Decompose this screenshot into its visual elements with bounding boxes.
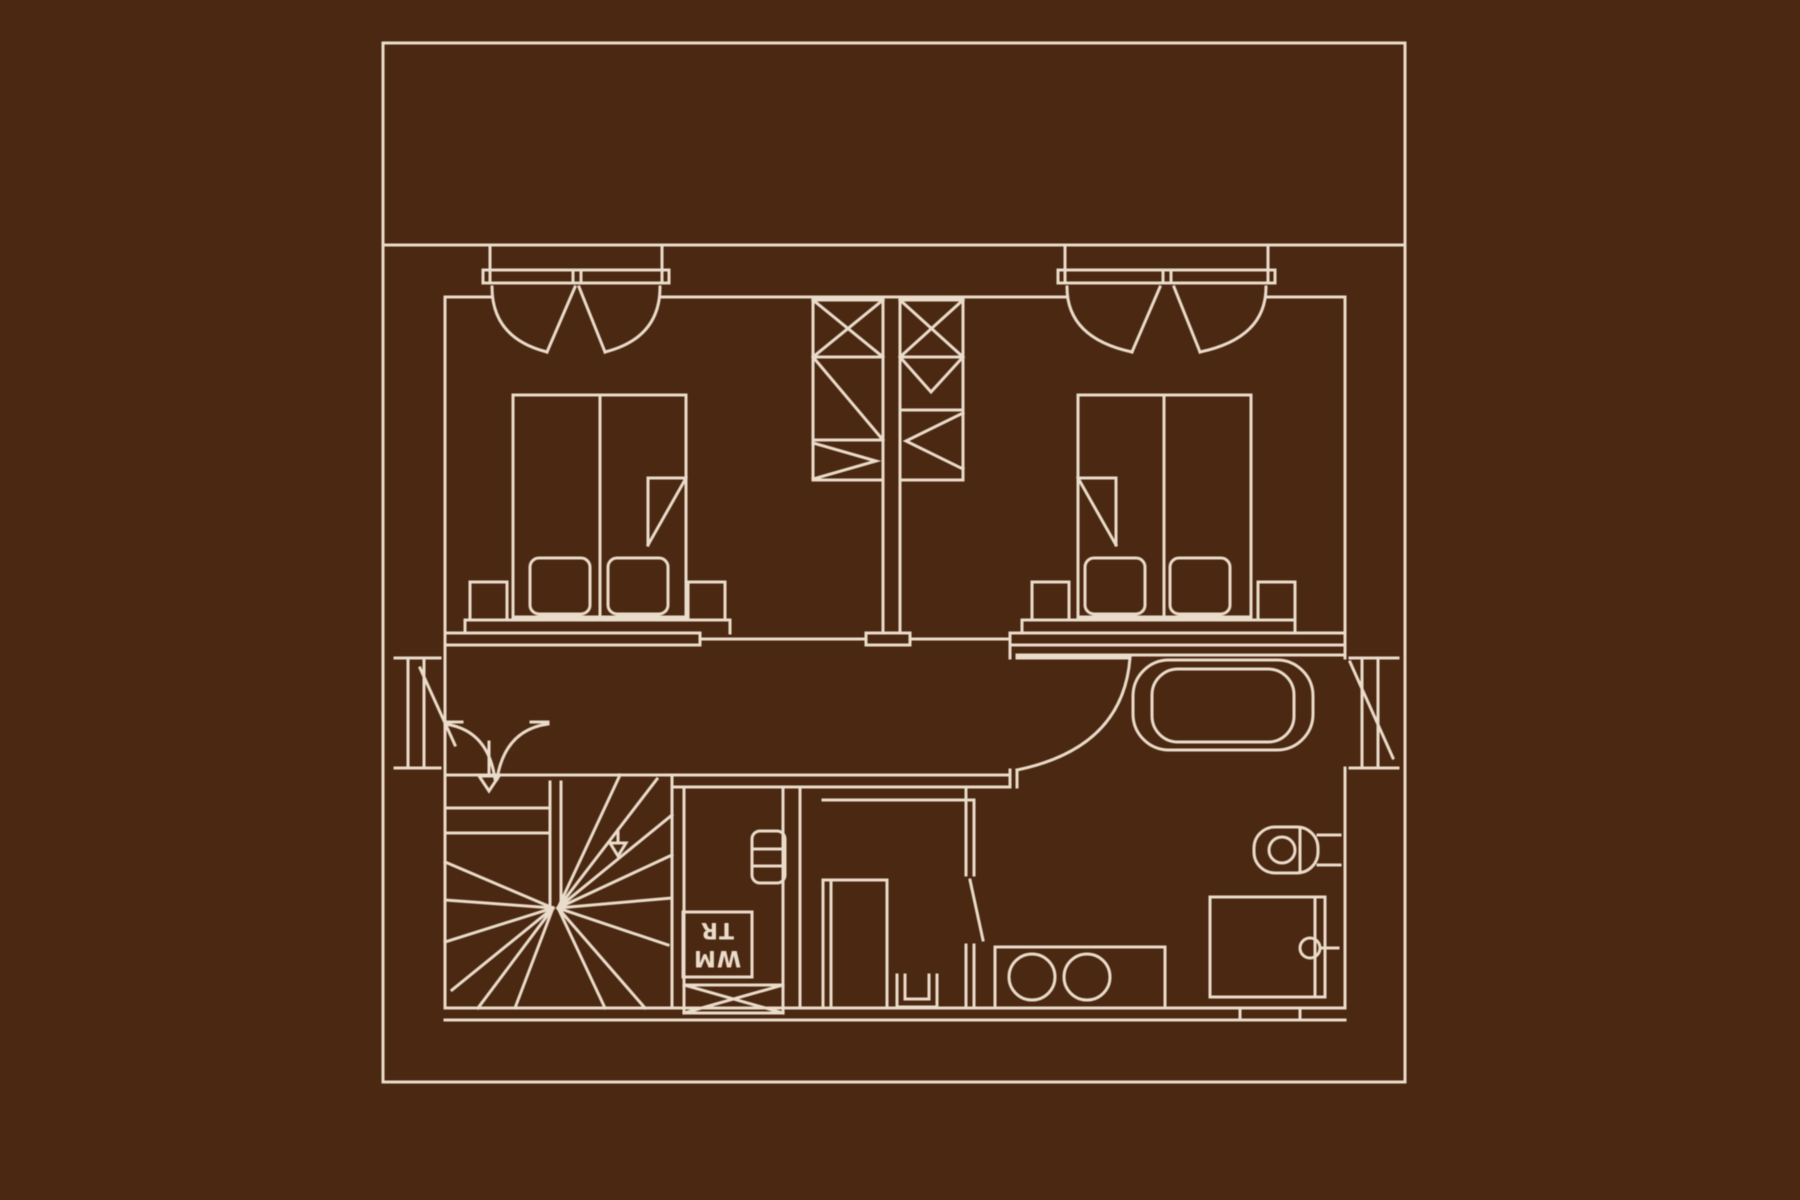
closet-right xyxy=(900,300,963,480)
closet-left xyxy=(813,300,883,480)
middle-room xyxy=(823,787,983,1008)
label-dryer: TR xyxy=(700,917,734,942)
floor-plan-canvas: TRWM xyxy=(0,0,1800,1200)
window-top-left xyxy=(483,245,669,352)
bathroom-door xyxy=(1010,645,1130,787)
bed-right xyxy=(1022,395,1295,633)
laundry-room: TRWM xyxy=(683,787,800,1013)
floor-plan: TRWM xyxy=(0,0,1800,1200)
window-side-right xyxy=(1350,658,1398,768)
bottom-wall xyxy=(445,1008,1345,1020)
label-washer: WM xyxy=(693,945,741,970)
hall-wall xyxy=(445,633,1345,655)
stairs xyxy=(445,722,672,1008)
bed-left xyxy=(465,395,730,633)
window-top-right xyxy=(1058,245,1275,352)
bathroom-fixtures xyxy=(995,660,1340,1008)
